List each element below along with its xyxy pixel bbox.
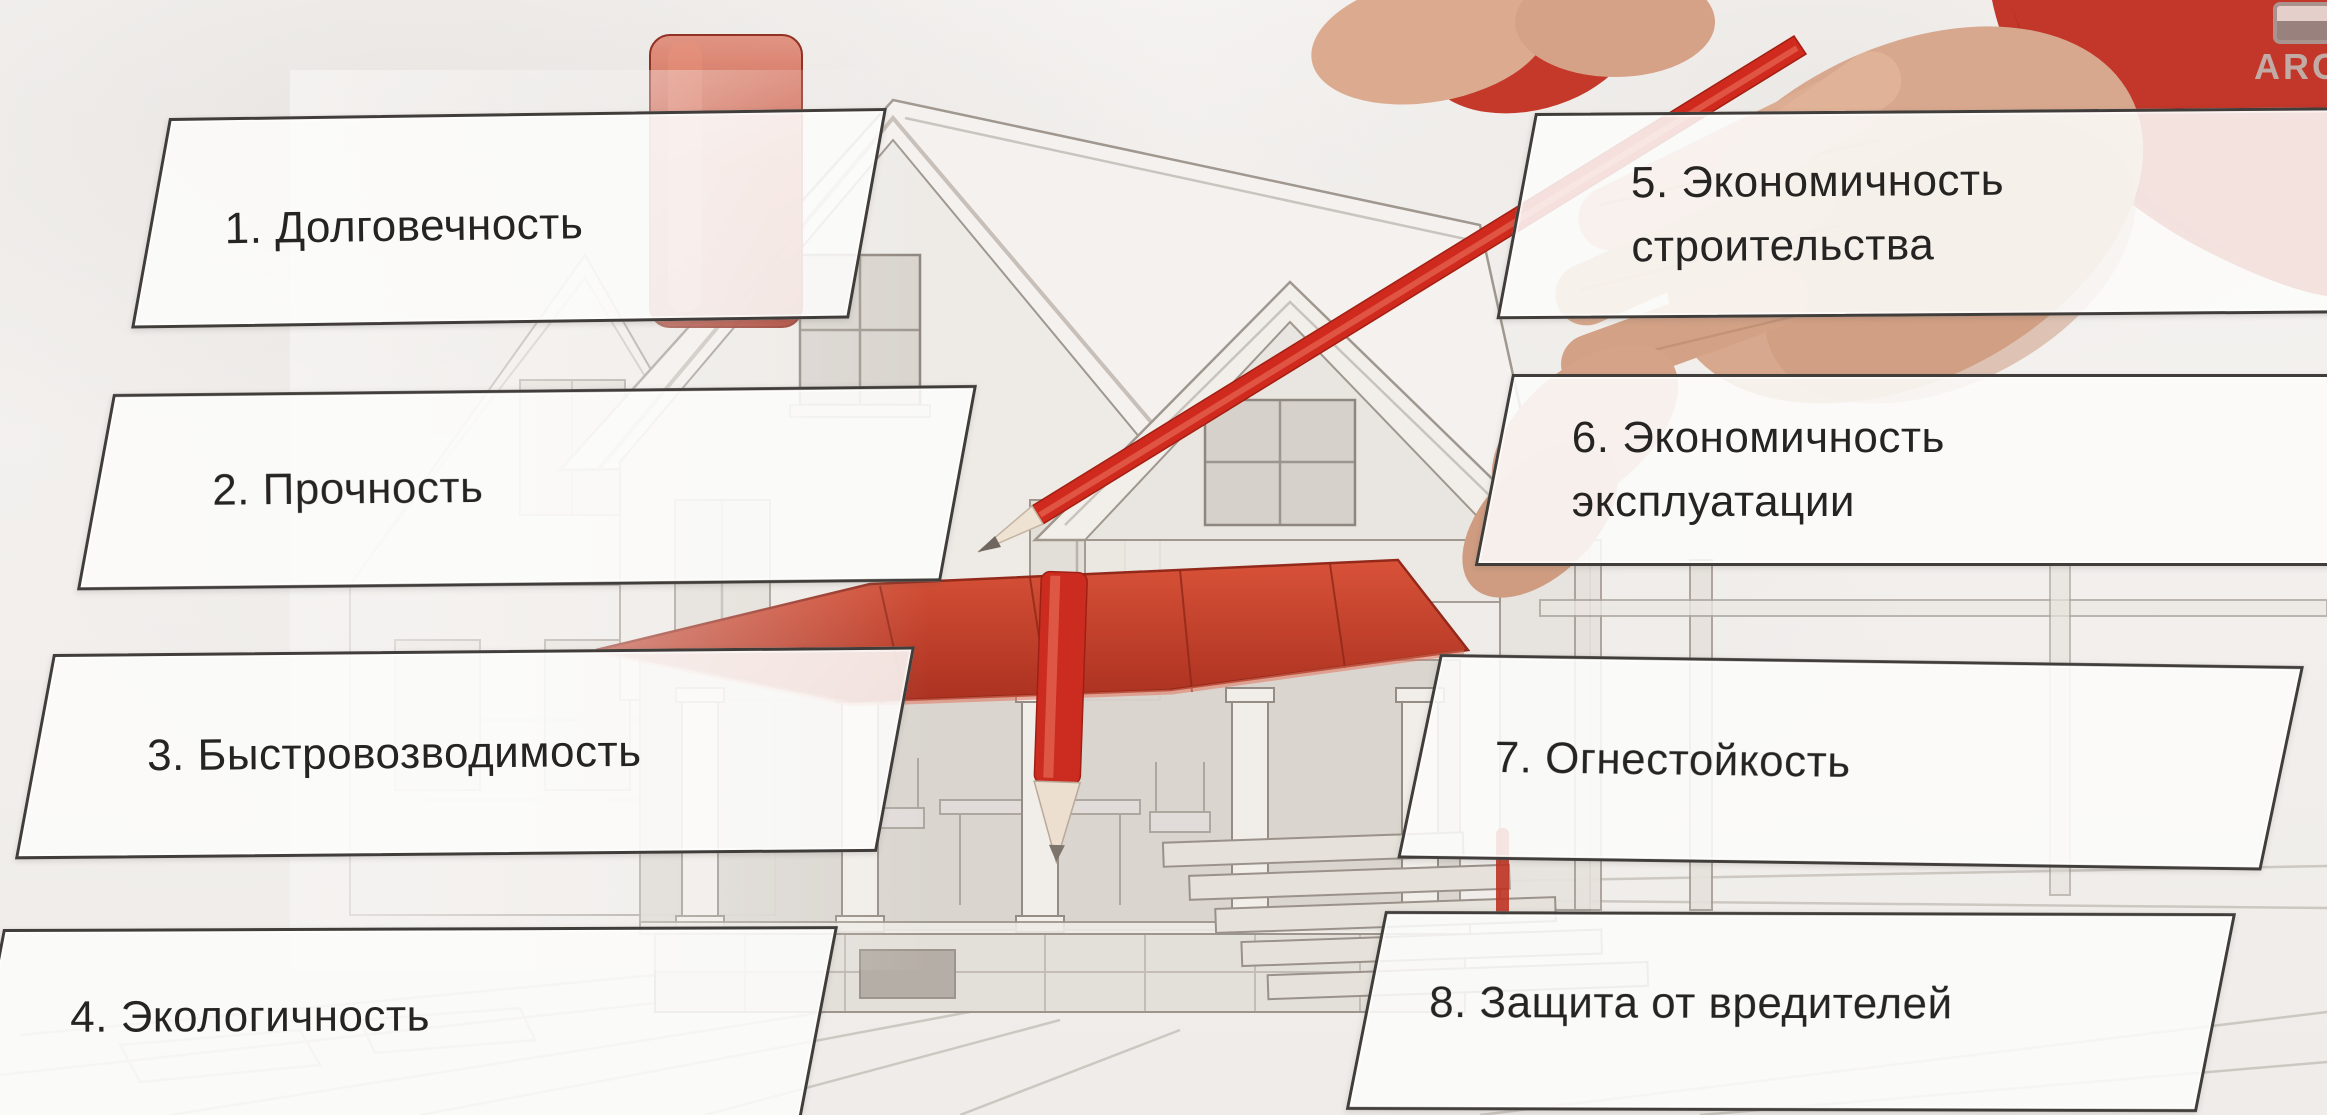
watermark-logo-icon <box>2273 2 2327 44</box>
label-line: 3. Быстровозводимость <box>147 717 900 788</box>
label-line: 4. Экологичность <box>70 983 824 1050</box>
label-box-pest-protection: 8. Защита от вредителей <box>1346 911 2236 1112</box>
infographic-canvas: 1. Долговечность 2. Прочность 3. Быстров… <box>0 0 2327 1115</box>
label-line: 6. Экономичность <box>1572 406 2327 470</box>
label-box-durability: 1. Долговечность <box>131 108 887 329</box>
label-box-fast-assembly: 3. Быстровозводимость <box>15 646 915 859</box>
label-box-construction-economy: 5. Экономичность строительства <box>1496 107 2327 319</box>
label-box-operation-economy: 6. Экономичность эксплуатации <box>1475 374 2327 566</box>
label-line: 2. Прочность <box>212 451 963 523</box>
label-line: 5. Экономичность <box>1631 146 2327 215</box>
watermark-text: ARC <box>2254 46 2327 88</box>
label-line: 8. Защита от вредителей <box>1429 971 2221 1037</box>
label-box-fire-resistance: 7. Огнестойкость <box>1397 654 2304 870</box>
label-box-eco-friendly: 4. Экологичность <box>0 926 838 1115</box>
label-line: строительства <box>1631 210 2327 279</box>
watermark: ARC <box>2254 2 2327 88</box>
label-line: эксплуатации <box>1572 470 2327 534</box>
label-line: 1. Долговечность <box>224 188 873 261</box>
label-line: 7. Огнестойкость <box>1494 725 2286 800</box>
label-box-strength: 2. Прочность <box>77 385 977 590</box>
